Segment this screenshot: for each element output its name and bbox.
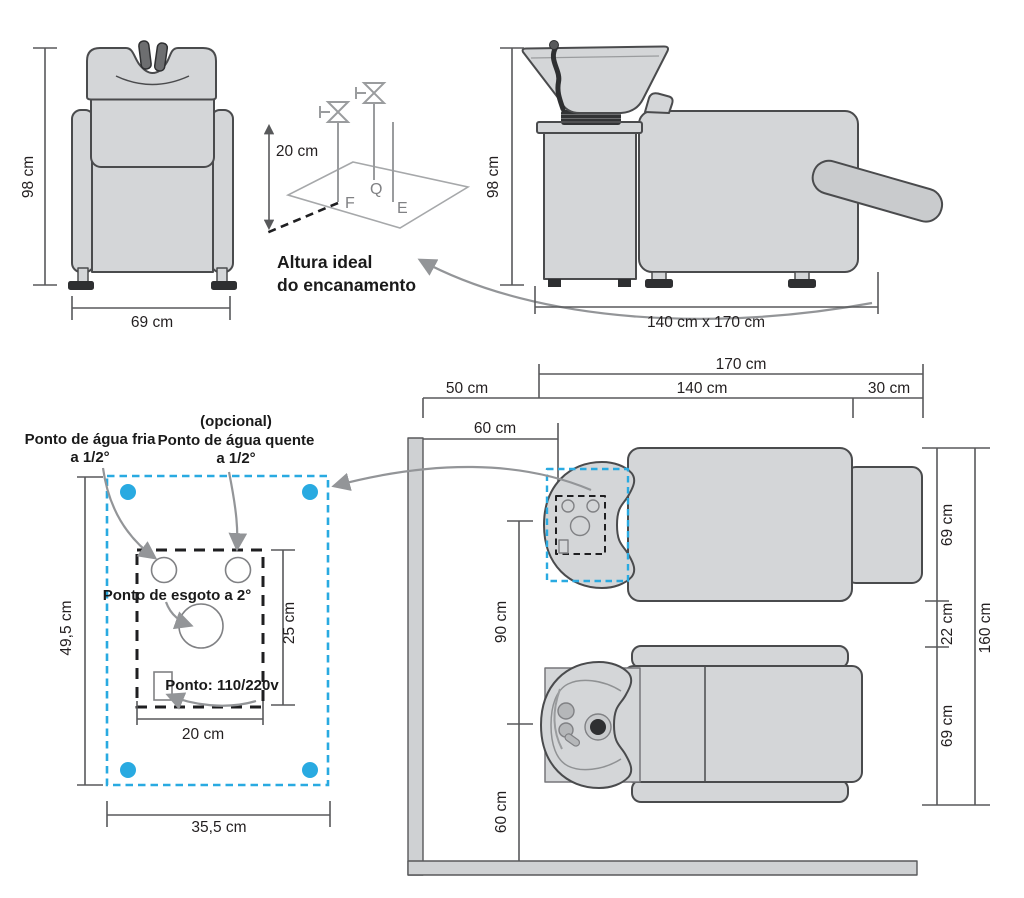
pipe-caption-line1: Altura ideal bbox=[277, 252, 372, 272]
chair2-top-view bbox=[541, 646, 862, 802]
pipe-label-q: Q bbox=[370, 181, 382, 198]
floor-plan: Ponto de água fria a 1/2° (opcional) Pon… bbox=[25, 413, 330, 836]
floor-plan-dim-lines bbox=[77, 477, 330, 827]
top-view-dim-lines-left bbox=[507, 521, 533, 861]
front-width-dim: 69 cm bbox=[131, 314, 173, 331]
diagram-svg: 98 cm 69 cm F Q E 20 cm Altura ideal do … bbox=[0, 0, 1024, 898]
gap-dim: 22 cm bbox=[939, 603, 956, 645]
front-leg-right bbox=[217, 268, 227, 282]
center-spacing-dim: 90 cm bbox=[493, 601, 510, 643]
side-backrest-top bbox=[645, 93, 673, 113]
top-view-dim-lines-top bbox=[423, 364, 923, 418]
pipe-floor-dashed-line bbox=[264, 203, 338, 234]
power-label: Ponto: 110/220v bbox=[165, 677, 279, 694]
drain-point bbox=[179, 604, 223, 648]
hose-knob-icon bbox=[550, 41, 559, 50]
fixation-point-dot bbox=[302, 762, 318, 778]
zone-width-dim: 20 cm bbox=[182, 726, 224, 743]
chair2-armrest-bottom bbox=[632, 780, 848, 802]
fixation-point-dot bbox=[302, 484, 318, 500]
chair2-width-dim: 69 cm bbox=[939, 705, 956, 747]
wall-left bbox=[408, 438, 423, 875]
side-height-dim: 98 cm bbox=[485, 156, 502, 198]
installation-diagram: 98 cm 69 cm F Q E 20 cm Altura ideal do … bbox=[0, 0, 1024, 898]
pipe-caption-line2: do encanamento bbox=[277, 275, 416, 295]
chair2-faucet-icon bbox=[558, 703, 574, 719]
front-leg-left bbox=[78, 268, 88, 282]
footrest-length-dim: 30 cm bbox=[868, 380, 910, 397]
pipe-label-e: E bbox=[397, 200, 408, 217]
cold-water-label-line1: Ponto de água fria bbox=[25, 431, 157, 448]
front-foot-right bbox=[211, 281, 237, 290]
chair1-width-dim: 69 cm bbox=[939, 504, 956, 546]
hot-water-label-line2: a 1/2° bbox=[216, 450, 255, 467]
front-foot-left bbox=[68, 281, 94, 290]
shower-handles-icon bbox=[138, 40, 168, 71]
side-view: 98 cm 140 cm x 170 cm bbox=[485, 41, 946, 332]
total-width-dim: 160 cm bbox=[977, 603, 994, 654]
hot-water-label-line1: Ponto de água quente bbox=[158, 432, 315, 449]
front-height-dim: 98 cm bbox=[20, 156, 37, 198]
chair1-body bbox=[628, 448, 852, 601]
center-to-wall-dim: 60 cm bbox=[493, 791, 510, 833]
front-view: 98 cm 69 cm bbox=[20, 40, 237, 331]
fixation-point-dot bbox=[120, 762, 136, 778]
wall-gap-dim: 50 cm bbox=[446, 380, 488, 397]
chair1-top-view bbox=[544, 448, 922, 601]
pipe-label-f: F bbox=[345, 195, 355, 212]
cold-water-point bbox=[152, 558, 177, 583]
chair1-footrest bbox=[846, 467, 922, 583]
cabinet-foot-right bbox=[618, 279, 631, 287]
chair2-body bbox=[624, 666, 862, 782]
valve-icon-hot bbox=[356, 83, 384, 103]
chair-length-dim: 140 cm bbox=[677, 380, 728, 397]
front-seat bbox=[92, 155, 213, 272]
side-foot-front bbox=[645, 279, 673, 288]
riser-height-dim: 20 cm bbox=[276, 143, 318, 160]
fixation-point-dot bbox=[120, 484, 136, 500]
chair2-armrest-top bbox=[632, 646, 848, 668]
cabinet-foot-left bbox=[548, 279, 561, 287]
chair2-drain-icon bbox=[590, 719, 606, 735]
base-width-dim: 35,5 cm bbox=[191, 819, 246, 836]
zone-height-dim: 25 cm bbox=[281, 602, 298, 644]
wall-to-point-dim: 60 cm bbox=[474, 420, 516, 437]
cold-water-label-line2: a 1/2° bbox=[70, 449, 109, 466]
basin-cabinet bbox=[544, 131, 636, 279]
top-view-layout: 170 cm 50 cm 140 cm 30 cm 60 cm 90 cm 60… bbox=[334, 356, 994, 875]
base-height-dim: 49,5 cm bbox=[58, 600, 75, 655]
valve-icon-cold bbox=[320, 102, 348, 122]
drain-label: Ponto de esgoto a 2° bbox=[103, 587, 252, 604]
optional-label: (opcional) bbox=[200, 413, 272, 430]
hot-water-point bbox=[226, 558, 251, 583]
side-footprint-dim: 140 cm x 170 cm bbox=[647, 314, 765, 331]
wall-bottom bbox=[408, 861, 917, 875]
front-headrest-basin bbox=[87, 48, 216, 100]
side-foot-rear bbox=[788, 279, 816, 288]
total-length-dim: 170 cm bbox=[716, 356, 767, 373]
plumbing-zone-pointer-arrow bbox=[334, 467, 591, 490]
